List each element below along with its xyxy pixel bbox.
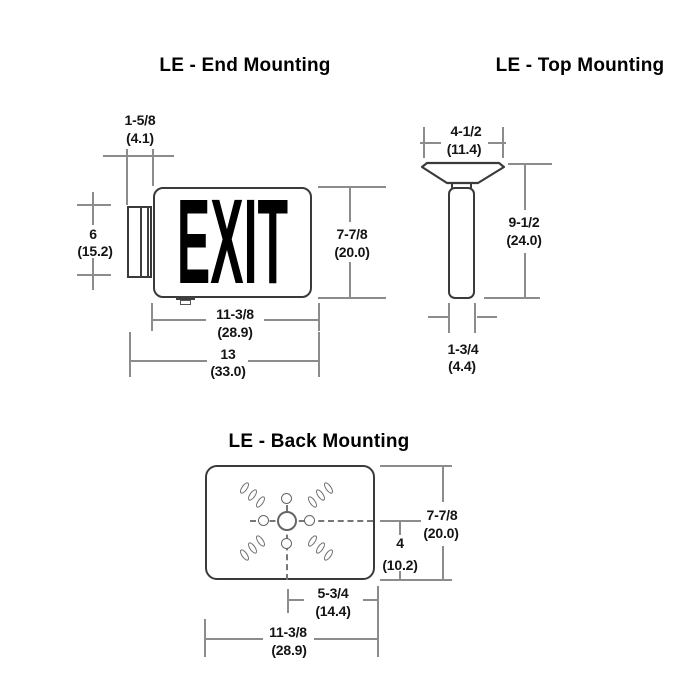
mounting-hole-top	[281, 493, 292, 504]
spec-sheet: LE - End Mounting LE - Top Mounting LE -…	[0, 0, 700, 700]
back-center-bottom-metric: (10.2)	[382, 557, 417, 573]
dimension-line	[130, 360, 207, 362]
end-bracket-height-value: 6	[89, 226, 97, 242]
witness-line	[129, 332, 131, 377]
dimension-line	[205, 638, 263, 640]
bracket-detail-line	[147, 207, 149, 277]
end-sign-width-value: 11-3/8	[216, 306, 254, 322]
mounting-hole-bottom	[281, 538, 292, 549]
witness-line	[448, 303, 450, 333]
center-hole	[277, 511, 297, 531]
dimension-line	[524, 164, 526, 210]
back-center-edge-metric: (14.4)	[315, 603, 350, 619]
witness-line	[318, 332, 320, 377]
back-plate-width-value: 11-3/8	[269, 624, 307, 640]
witness-line	[484, 297, 540, 299]
exit-sign-text: EXIT	[177, 181, 288, 302]
witness-line	[502, 127, 504, 158]
witness-line	[287, 589, 289, 613]
top-canopy-width-metric: (11.4)	[447, 141, 482, 157]
top-height-metric: (24.0)	[506, 232, 541, 248]
latch-tab-detail	[180, 300, 191, 305]
dimension-line	[477, 316, 497, 318]
back-plate-width-metric: (28.9)	[271, 642, 306, 658]
end-sign-width-metric: (28.9)	[217, 324, 252, 340]
end-total-width-value: 13	[220, 346, 235, 362]
witness-line	[423, 127, 425, 158]
dimension-line	[92, 258, 94, 290]
top-stem-width-value: 1-3/4	[448, 341, 479, 357]
witness-line	[377, 586, 379, 657]
dimension-line	[92, 192, 94, 225]
top-canopy-width-value: 4-1/2	[451, 123, 482, 139]
dimension-line	[363, 599, 378, 601]
witness-line	[474, 303, 476, 333]
end-bracket-height-metric: (15.2)	[77, 243, 112, 259]
witness-line	[151, 303, 153, 331]
witness-line	[318, 303, 320, 331]
bracket-detail-line	[140, 207, 142, 277]
end-sign-height-metric: (20.0)	[334, 244, 369, 260]
dimension-line	[442, 546, 444, 580]
dimension-line	[349, 262, 351, 298]
dimension-line	[428, 316, 448, 318]
top-mounting-title: LE - Top Mounting	[496, 55, 665, 77]
mounting-hole-right	[304, 515, 315, 526]
dimension-line	[399, 521, 401, 535]
mounting-stem	[448, 187, 475, 299]
exit-sign-housing: EXIT	[153, 187, 312, 298]
dimension-line	[103, 155, 174, 157]
witness-line	[77, 204, 111, 206]
back-plate-height-value: 7-7/8	[427, 507, 458, 523]
end-total-width-metric: (33.0)	[210, 363, 245, 379]
top-stem-width-metric: (4.4)	[448, 358, 476, 374]
end-bracket-width-value: 1-5/8	[125, 112, 156, 128]
ceiling-canopy	[415, 157, 511, 191]
witness-line	[126, 149, 128, 205]
back-center-bottom-value: 4	[396, 535, 404, 551]
back-plate-height-metric: (20.0)	[423, 525, 458, 541]
back-mounting-title: LE - Back Mounting	[229, 431, 410, 453]
witness-line	[508, 163, 552, 165]
witness-line	[318, 297, 386, 299]
dimension-line	[314, 638, 378, 640]
witness-line	[152, 149, 154, 186]
witness-line	[77, 274, 111, 276]
mounting-hole-left	[258, 515, 269, 526]
witness-line	[318, 186, 386, 188]
dimension-line	[524, 253, 526, 298]
end-bracket-width-metric: (4.1)	[126, 130, 154, 146]
dimension-line	[264, 319, 319, 321]
dimension-line	[349, 187, 351, 222]
dimension-line	[442, 466, 444, 502]
end-sign-height-value: 7-7/8	[337, 226, 368, 242]
dimension-line	[288, 599, 304, 601]
end-mounting-title: LE - End Mounting	[159, 55, 330, 77]
dimension-line	[152, 319, 206, 321]
dimension-line	[248, 360, 319, 362]
top-height-value: 9-1/2	[509, 214, 540, 230]
back-center-edge-value: 5-3/4	[318, 585, 349, 601]
